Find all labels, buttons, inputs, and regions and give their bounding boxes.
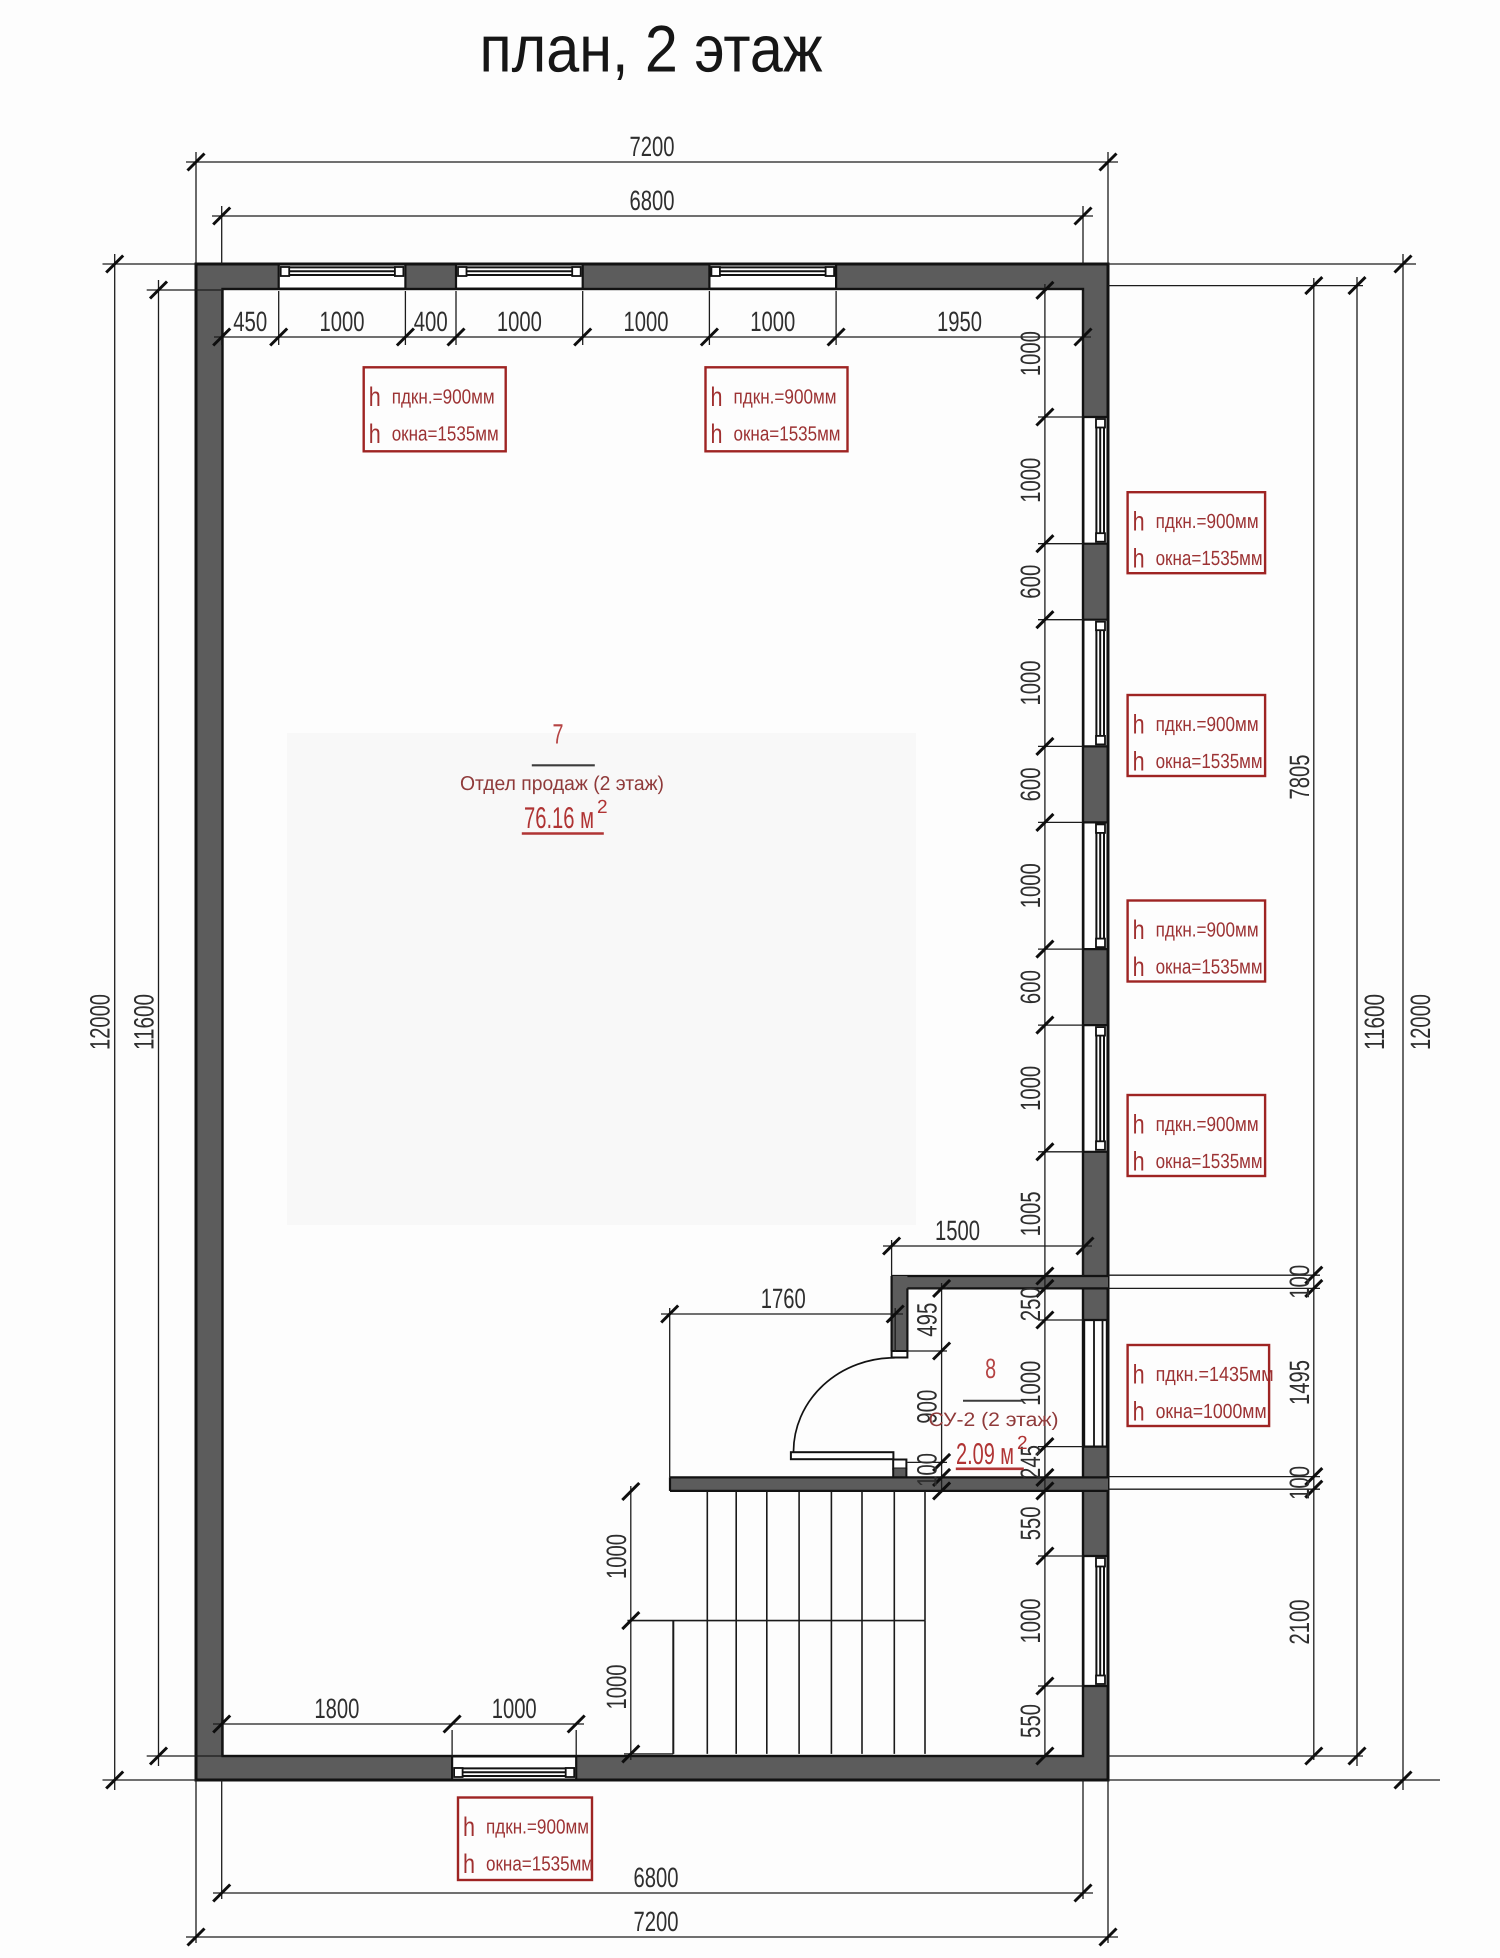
svg-text:h: h [1133,544,1145,574]
svg-text:окна=1535мм: окна=1535мм [1156,547,1263,570]
svg-text:1000: 1000 [601,1665,632,1710]
svg-text:8: 8 [985,1353,996,1384]
svg-text:1000: 1000 [1015,863,1046,908]
svg-text:h: h [1133,747,1145,777]
svg-text:h: h [1133,710,1145,740]
svg-text:6800: 6800 [630,185,675,216]
svg-text:h: h [463,1812,475,1842]
svg-text:76.16 м: 76.16 м [524,802,594,835]
svg-text:550: 550 [1015,1704,1046,1738]
svg-text:окна=1535мм: окна=1535мм [734,422,841,445]
svg-text:h: h [1133,915,1145,945]
svg-text:h: h [1133,1110,1145,1140]
svg-text:пдкн.=1435мм: пдкн.=1435мм [1156,1363,1274,1386]
svg-text:2: 2 [1017,1433,1028,1454]
svg-text:1000: 1000 [1015,1361,1046,1406]
svg-text:100: 100 [1284,1265,1315,1299]
svg-text:h: h [369,382,381,412]
svg-text:2: 2 [597,797,608,818]
svg-text:2.09 м: 2.09 м [956,1438,1014,1471]
svg-text:1950: 1950 [937,306,982,337]
svg-text:7: 7 [553,719,564,750]
svg-text:1000: 1000 [1015,458,1046,503]
svg-text:450: 450 [233,306,267,337]
svg-text:1005: 1005 [1015,1191,1046,1236]
svg-text:h: h [711,419,723,449]
svg-text:1000: 1000 [1015,661,1046,706]
svg-text:1760: 1760 [761,1283,806,1314]
svg-text:окна=1535мм: окна=1535мм [1156,1150,1263,1173]
svg-text:495: 495 [912,1303,943,1337]
svg-text:пдкн.=900мм: пдкн.=900мм [392,385,495,408]
svg-text:окна=1535мм: окна=1535мм [1156,956,1263,979]
svg-text:11600: 11600 [129,994,160,1050]
svg-text:h: h [369,419,381,449]
svg-text:100: 100 [912,1453,943,1487]
svg-text:пдкн.=900мм: пдкн.=900мм [486,1816,589,1839]
svg-text:h: h [1133,1147,1145,1177]
svg-text:Отдел продаж (2 этаж): Отдел продаж (2 этаж) [460,773,664,795]
svg-text:1800: 1800 [314,1693,359,1724]
svg-text:1500: 1500 [935,1215,980,1246]
svg-text:600: 600 [1015,565,1046,599]
svg-text:окна=1535мм: окна=1535мм [1156,750,1263,773]
svg-text:1000: 1000 [497,306,542,337]
svg-text:h: h [463,1849,475,1879]
svg-text:1000: 1000 [1015,1066,1046,1111]
svg-text:1000: 1000 [1015,331,1046,376]
svg-text:h: h [1133,507,1145,537]
svg-text:12000: 12000 [1405,994,1436,1050]
svg-text:100: 100 [1284,1466,1315,1500]
svg-text:2100: 2100 [1284,1600,1315,1645]
svg-text:1000: 1000 [1015,1599,1046,1644]
svg-text:пдкн.=900мм: пдкн.=900мм [1156,919,1259,942]
svg-text:7200: 7200 [630,131,675,162]
svg-text:1000: 1000 [601,1534,632,1579]
svg-text:250: 250 [1015,1287,1046,1321]
svg-text:h: h [711,382,723,412]
svg-text:6800: 6800 [634,1862,679,1893]
svg-text:1000: 1000 [492,1693,537,1724]
svg-text:план, 2 этаж: план, 2 этаж [480,12,823,86]
svg-text:пдкн.=900мм: пдкн.=900мм [734,385,837,408]
svg-text:400: 400 [414,306,448,337]
svg-text:12000: 12000 [85,994,116,1050]
svg-text:7805: 7805 [1284,755,1315,800]
svg-text:окна=1535мм: окна=1535мм [392,422,499,445]
svg-text:7200: 7200 [634,1906,679,1937]
svg-text:окна=1000мм: окна=1000мм [1156,1400,1267,1423]
svg-text:1495: 1495 [1284,1360,1315,1405]
svg-text:пдкн.=900мм: пдкн.=900мм [1156,510,1259,533]
svg-text:1000: 1000 [320,306,365,337]
svg-text:h: h [1133,1397,1145,1427]
svg-text:h: h [1133,1360,1145,1390]
svg-text:1000: 1000 [624,306,669,337]
svg-text:пдкн.=900мм: пдкн.=900мм [1156,713,1259,736]
svg-text:окна=1535мм: окна=1535мм [486,1853,593,1876]
svg-text:пдкн.=900мм: пдкн.=900мм [1156,1113,1259,1136]
svg-text:550: 550 [1015,1506,1046,1540]
svg-text:h: h [1133,952,1145,982]
svg-text:600: 600 [1015,970,1046,1004]
svg-text:600: 600 [1015,767,1046,801]
svg-text:11600: 11600 [1359,994,1390,1050]
svg-text:1000: 1000 [750,306,795,337]
svg-text:СУ-2 (2 этаж): СУ-2 (2 этаж) [929,1409,1059,1431]
